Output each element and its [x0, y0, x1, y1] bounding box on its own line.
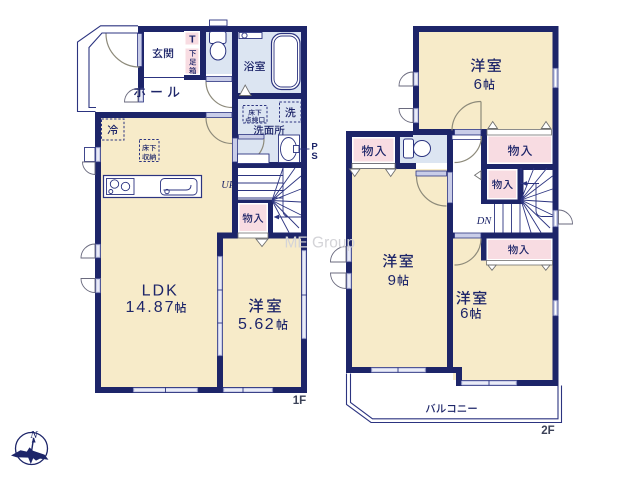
svg-text:LDK: LDK [142, 282, 179, 299]
svg-text:1F: 1F [293, 395, 306, 407]
svg-text:14.87: 14.87 [126, 299, 176, 316]
svg-text:UP: UP [221, 180, 236, 191]
svg-text:DN: DN [476, 216, 493, 227]
svg-text:5.62: 5.62 [238, 316, 275, 333]
svg-text:S: S [311, 151, 317, 162]
svg-text:9: 9 [388, 272, 396, 289]
svg-text:6: 6 [460, 305, 468, 322]
svg-text:2F: 2F [541, 425, 554, 437]
svg-text:N: N [29, 429, 38, 441]
svg-text:ME Group: ME Group [285, 235, 356, 252]
svg-text:T: T [189, 34, 196, 46]
svg-text:6: 6 [474, 76, 482, 93]
